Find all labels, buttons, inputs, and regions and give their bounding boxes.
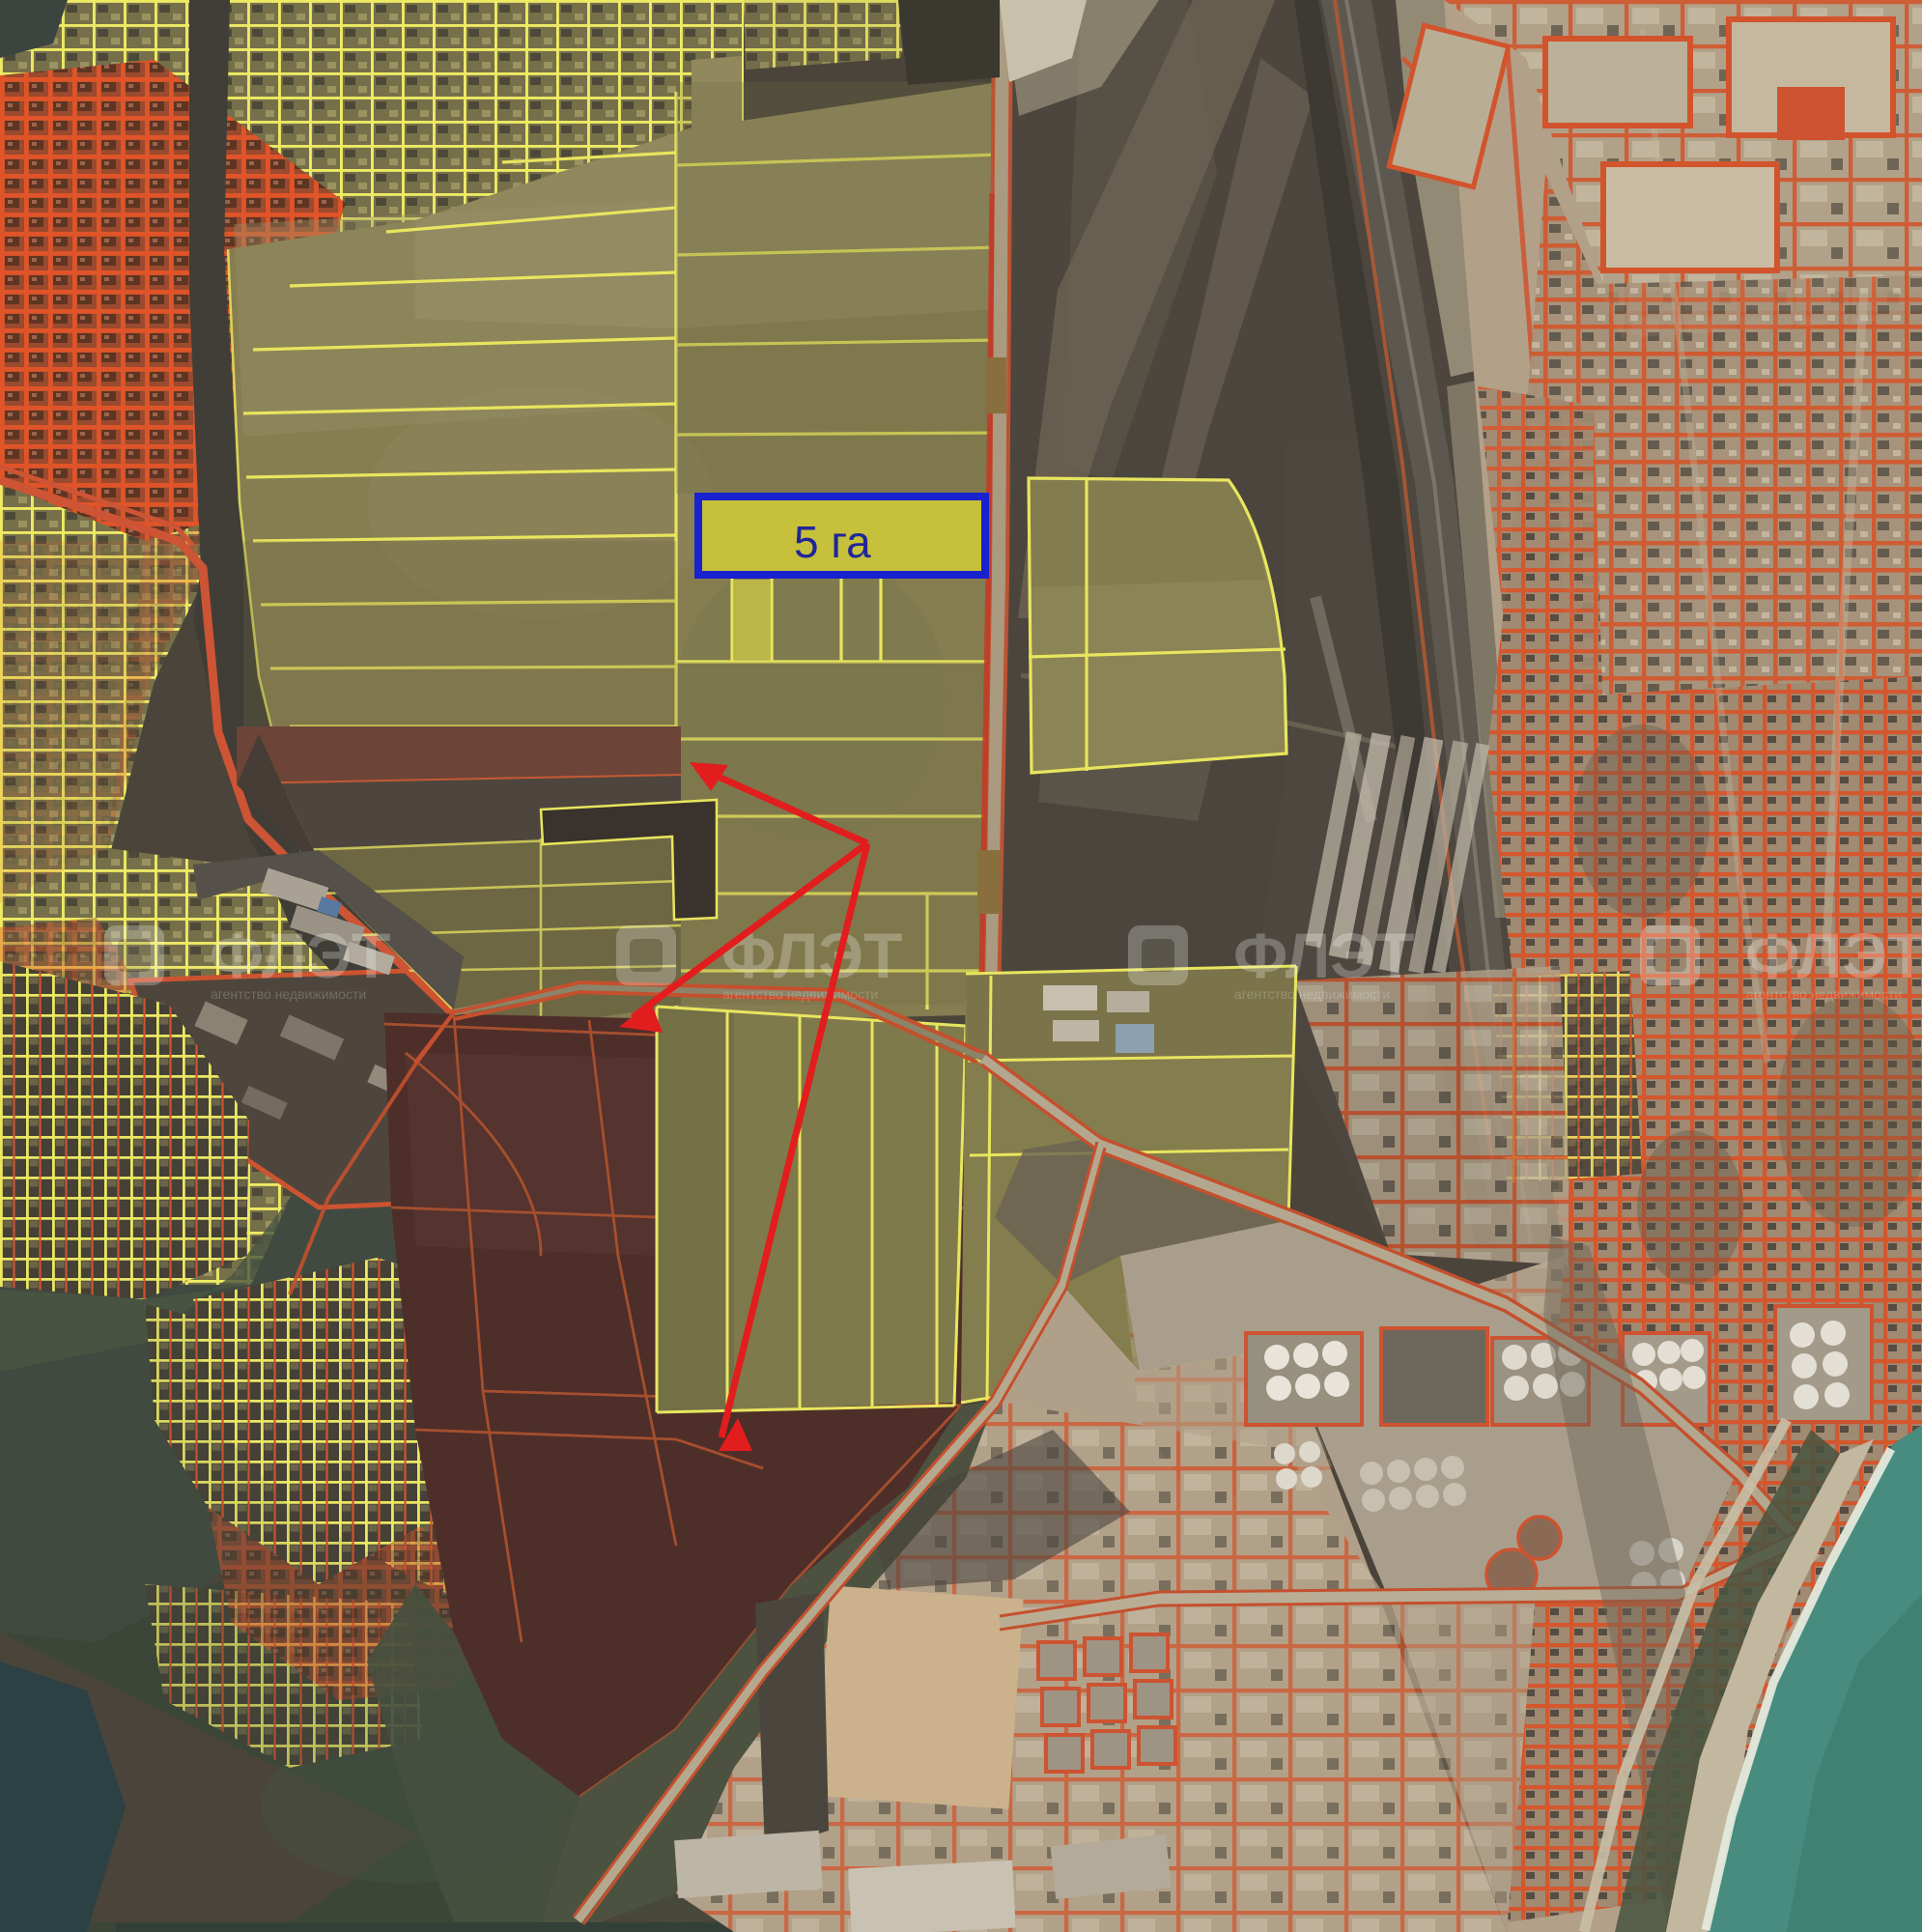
svg-text:ФЛЭТ: ФЛЭТ [210,920,390,991]
svg-text:агентство недвижимости: агентство недвижимости [211,986,366,1002]
svg-text:агентство недвижимости: агентство недвижимости [1234,986,1390,1002]
svg-text:агентство недвижимости: агентство недвижимости [722,986,878,1002]
svg-text:5 га: 5 га [794,517,871,567]
svg-text:агентство недвижимости: агентство недвижимости [1746,986,1902,1002]
svg-text:ФЛЭТ: ФЛЭТ [1233,920,1414,991]
svg-text:ФЛЭТ: ФЛЭТ [1745,920,1922,991]
